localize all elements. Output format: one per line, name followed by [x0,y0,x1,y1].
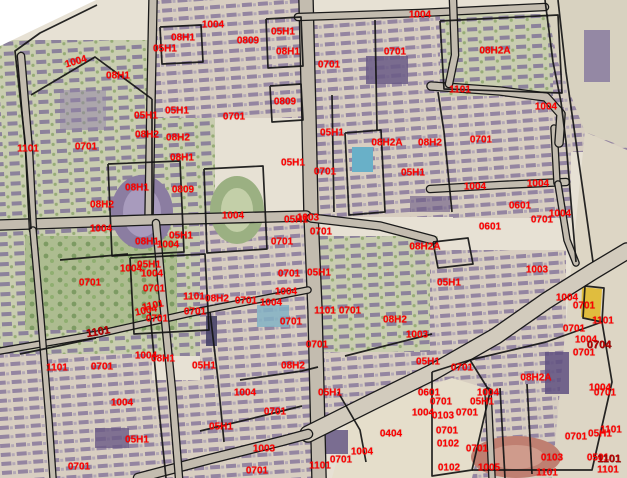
aerial-map-canvas[interactable] [0,0,627,478]
map-viewport[interactable]: 100408H105H108H11004080905H108H107011004… [0,0,627,478]
